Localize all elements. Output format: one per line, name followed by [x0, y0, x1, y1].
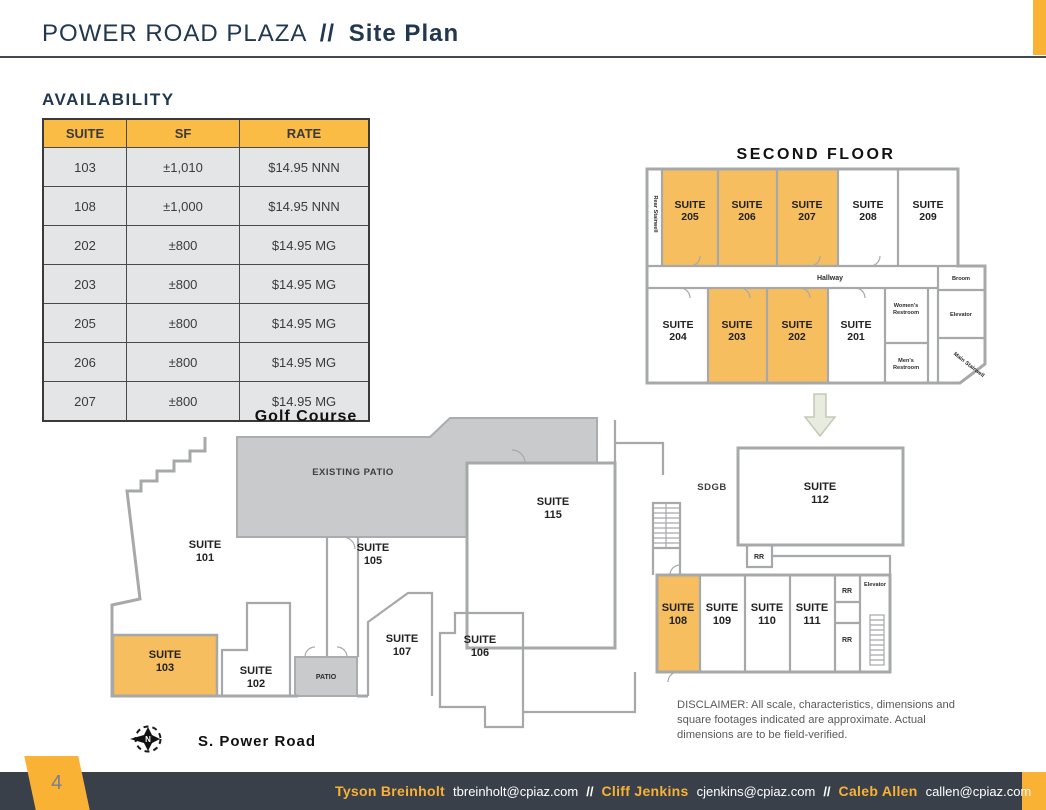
cell-suite: 108 [43, 187, 127, 226]
contact-email[interactable]: callen@cpiaz.com [926, 784, 1032, 799]
elevator-label: Elevator [864, 582, 887, 588]
table-row: 203 ±800 $14.95 MG [43, 265, 369, 304]
existing-patio-label: EXISTING PATIO [312, 467, 394, 478]
second-floor-pointer-arrow [805, 394, 835, 436]
svg-text:N: N [145, 735, 151, 744]
golf-course-label: Golf Course [255, 408, 358, 425]
utility-column-walls [938, 266, 985, 383]
table-row: 206 ±800 $14.95 MG [43, 343, 369, 382]
mens-restroom-label: Men'sRestroom [893, 358, 919, 371]
footer-contacts: Tyson Breinholt tbreinholt@cpiaz.com // … [335, 772, 1031, 810]
east-stairs-icon [870, 620, 884, 660]
suite-105-label: SUITE105 [357, 542, 389, 567]
disclaimer-text: DISCLAIMER: All scale, characteristics, … [677, 698, 967, 743]
suite-111-label: SUITE111 [796, 602, 828, 627]
cell-rate: $14.95 MG [240, 226, 370, 265]
suite-209-label: SUITE209 [913, 199, 944, 223]
suite-109-label: SUITE109 [706, 602, 738, 627]
rear-stairwell-label: Rear Stairwell [652, 196, 658, 233]
cell-rate: $14.95 MG [240, 265, 370, 304]
availability-table: SUITE SF RATE 103 ±1,010 $14.95 NNN 108 … [42, 118, 370, 422]
contact-name: Tyson Breinholt [335, 783, 445, 799]
broom-label: Broom [952, 276, 970, 282]
cell-suite: 203 [43, 265, 127, 304]
page-number-tab: 4 [24, 756, 89, 810]
column-header-suite: SUITE [43, 119, 127, 148]
page-title-separator: // [320, 20, 335, 47]
rr-north-label: RR [842, 588, 852, 595]
table-row: 202 ±800 $14.95 MG [43, 226, 369, 265]
corridor-walls [327, 537, 358, 657]
contact-name: Caleb Allen [839, 783, 918, 799]
existing-patio-area [237, 418, 597, 537]
page-title-main: POWER ROAD PLAZA [42, 20, 306, 47]
cell-suite: 205 [43, 304, 127, 343]
table-row: 103 ±1,010 $14.95 NNN [43, 148, 369, 187]
patio-label: PATIO [316, 674, 337, 681]
suite-107-label: SUITE107 [386, 633, 418, 658]
availability-heading: AVAILABILITY [42, 90, 175, 110]
elevator-label: Elevator [950, 312, 973, 318]
suite-112-label: SUITE112 [804, 481, 836, 506]
cell-rate: $14.95 MG [240, 304, 370, 343]
cell-sf: ±800 [127, 343, 240, 382]
cell-suite: 206 [43, 343, 127, 382]
header-divider [0, 56, 1046, 58]
suite-110-label: SUITE110 [751, 602, 783, 627]
suite-101-label: SUITE101 [189, 539, 221, 564]
contact-separator: // [823, 784, 830, 799]
cell-sf: ±800 [127, 226, 240, 265]
power-road-label: S. Power Road [198, 733, 316, 750]
cell-sf: ±1,010 [127, 148, 240, 187]
cell-suite: 202 [43, 226, 127, 265]
cell-suite: 103 [43, 148, 127, 187]
table-row: 108 ±1,000 $14.95 NNN [43, 187, 369, 226]
contact-email[interactable]: tbreinholt@cpiaz.com [453, 784, 578, 799]
page-title: POWER ROAD PLAZA // Site Plan [42, 20, 459, 48]
rr-south-label: RR [842, 637, 852, 644]
cell-rate: $14.95 NNN [240, 187, 370, 226]
east-connector-wall [772, 556, 890, 575]
page-number: 4 [51, 772, 62, 795]
stair-corridor-walls [653, 548, 680, 575]
contact-separator: // [586, 784, 593, 799]
cell-sf: ±800 [127, 265, 240, 304]
table-row: 205 ±800 $14.95 MG [43, 304, 369, 343]
table-header-row: SUITE SF RATE [43, 119, 369, 148]
sdgb-entry-walls [615, 420, 663, 475]
cell-rate: $14.95 NNN [240, 148, 370, 187]
southeast-connector-wall [523, 672, 635, 712]
rr-112-label: RR [754, 554, 764, 561]
suite-204-label: SUITE204 [663, 319, 694, 343]
stairs-icon [653, 503, 680, 548]
north-compass-icon: N [130, 727, 161, 752]
suite-106-walls [440, 613, 523, 727]
suite-115-walls [467, 463, 615, 648]
column-header-sf: SF [127, 119, 240, 148]
second-floor-title: SECOND FLOOR [640, 146, 992, 164]
sdgb-label: SDGB [697, 482, 726, 493]
cell-sf: ±1,000 [127, 187, 240, 226]
page-title-sub: Site Plan [349, 20, 459, 47]
suite-201-label: SUITE201 [841, 319, 872, 343]
flyer-page: POWER ROAD PLAZA // Site Plan AVAILABILI… [0, 0, 1046, 810]
corner-accent [1033, 0, 1046, 55]
contact-name: Cliff Jenkins [601, 783, 688, 799]
column-header-rate: RATE [240, 119, 370, 148]
second-floor-plan: Rear Stairwell SUITE205 SUITE206 SUITE20… [640, 166, 992, 404]
suite-102-label: SUITE102 [240, 665, 272, 690]
suite-208-label: SUITE208 [853, 199, 884, 223]
suite-115-label: SUITE115 [537, 496, 569, 521]
cell-rate: $14.95 MG [240, 343, 370, 382]
contact-email[interactable]: cjenkins@cpiaz.com [697, 784, 816, 799]
womens-restroom-label: Women'sRestroom [893, 303, 919, 316]
cell-sf: ±800 [127, 304, 240, 343]
hallway-label: Hallway [817, 275, 843, 282]
